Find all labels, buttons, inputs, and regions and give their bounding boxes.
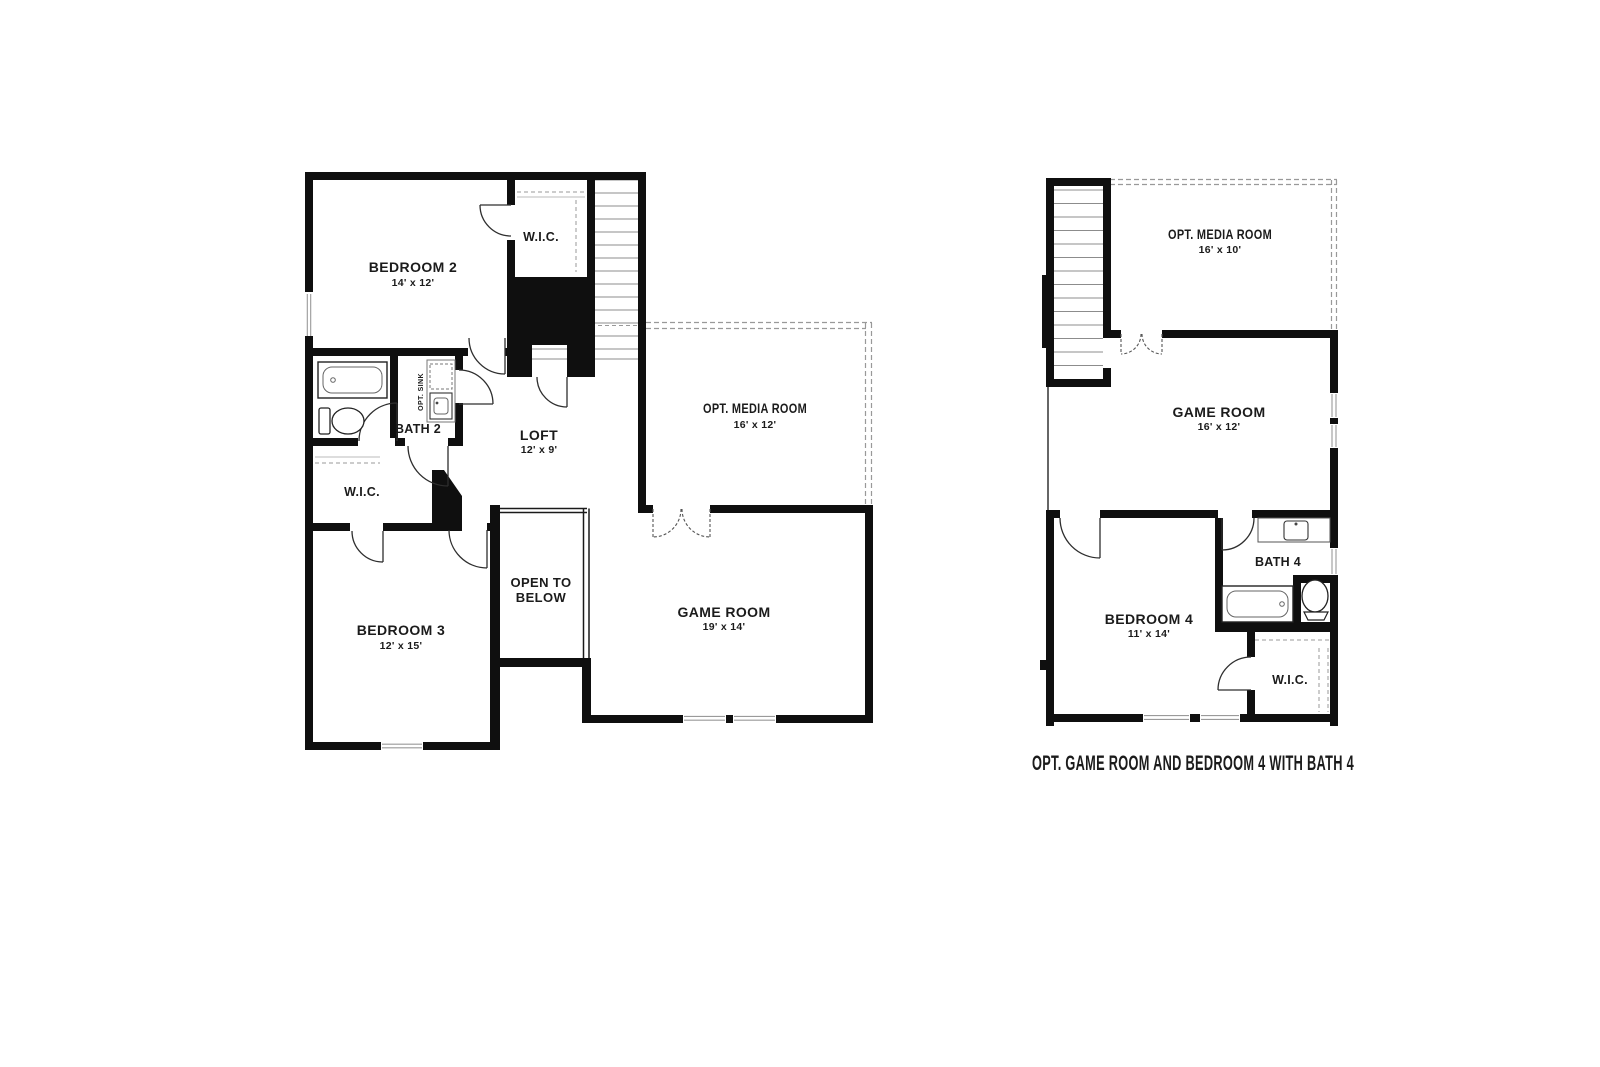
option-floor-plan: OPT. MEDIA ROOM 16' x 10' GAME ROOM 16' … (1032, 178, 1354, 775)
toilet-bowl (332, 408, 364, 434)
bedroom4-dims: 11' x 14' (1128, 628, 1170, 640)
media-room-double-door-arcs (653, 509, 710, 537)
media-room-double-door-arcs (1121, 334, 1162, 354)
toilet-bowl (1302, 580, 1328, 612)
gameroom-label: GAME ROOM (1172, 404, 1265, 420)
gameroom-label: GAME ROOM (677, 604, 770, 620)
opt-media-room-label: OPT. MEDIA ROOM (1168, 226, 1272, 242)
bedroom3-label: BEDROOM 3 (357, 622, 445, 638)
gameroom-dims: 16' x 12' (1198, 421, 1241, 433)
opt-media-room-label: OPT. MEDIA ROOM (703, 400, 807, 416)
main-floor-plan: BEDROOM 2 14' x 12' W.I.C. BATH 2 OPT. S… (305, 172, 873, 750)
sink-faucet (1295, 523, 1298, 526)
toilet-base (1304, 612, 1328, 620)
bedroom4-label: BEDROOM 4 (1105, 611, 1193, 627)
floorplan-canvas: BEDROOM 2 14' x 12' W.I.C. BATH 2 OPT. S… (0, 0, 1600, 1067)
wic-label: W.I.C. (1272, 673, 1308, 687)
wic2-label: W.I.C. (344, 485, 380, 499)
vanity-counter (1258, 518, 1330, 542)
walls (1040, 178, 1338, 726)
opt-media-room-dims: 16' x 10' (1199, 244, 1242, 256)
gameroom-dims: 19' x 14' (703, 621, 746, 633)
loft-dims: 12' x 9' (521, 444, 558, 456)
vanity-counter (427, 360, 455, 422)
toilet-tank (319, 408, 330, 434)
opt-media-room-dims: 16' x 12' (734, 419, 777, 431)
option-plan-caption: OPT. GAME ROOM AND BEDROOM 4 WITH BATH 4 (1032, 752, 1354, 775)
stairs-treads (595, 180, 638, 336)
floorplan-page: BEDROOM 2 14' x 12' W.I.C. BATH 2 OPT. S… (0, 0, 1600, 1067)
open-to-below-label-line1: OPEN TO (510, 575, 571, 590)
opt-sink-label: OPT. SINK (418, 373, 425, 411)
window-lines (1144, 394, 1336, 719)
bath2-label: BATH 2 (395, 422, 441, 436)
bedroom3-dims: 12' x 15' (380, 640, 423, 652)
wic-top-label: W.I.C. (523, 230, 559, 244)
bath4-label: BATH 4 (1255, 555, 1301, 569)
sink-faucet (436, 402, 439, 405)
stairs-treads (1054, 190, 1103, 366)
open-to-below-label-line2: BELOW (516, 590, 567, 605)
bedroom2-dims: 14' x 12' (392, 277, 435, 289)
bath4-fixtures (1222, 518, 1330, 622)
bedroom2-label: BEDROOM 2 (369, 259, 457, 275)
loft-label: LOFT (520, 427, 558, 443)
